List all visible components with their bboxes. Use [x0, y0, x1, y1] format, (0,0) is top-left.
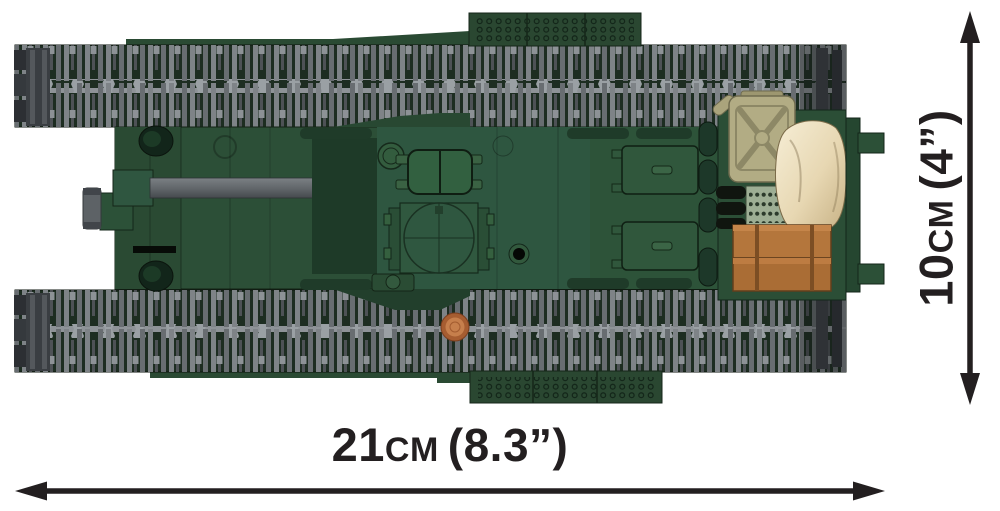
sack: [776, 121, 847, 233]
stud-block-bottom: [470, 371, 662, 403]
width-dimension-label: 21CM(8.3”): [15, 421, 885, 468]
crates: [733, 225, 831, 291]
product-dimension-diagram: 21CM(8.3”) 10CM(4”): [0, 0, 1000, 511]
tool-block: [716, 186, 746, 199]
tow-tab-top: [858, 133, 884, 153]
hull-dark-plate-left: [312, 138, 378, 274]
width-arrow-icon: [15, 480, 885, 502]
engine-hatch-top: [612, 146, 698, 194]
rear-cargo-deck: [711, 91, 846, 300]
copper-stud: [441, 313, 469, 341]
vision-slot: [133, 246, 176, 253]
height-unit: CM: [923, 200, 961, 254]
track-end-cap-left: [14, 48, 50, 126]
height-imperial: (4”): [911, 109, 963, 190]
rear-plate: [846, 118, 884, 292]
stud-block-top: [469, 13, 641, 46]
width-value: 21: [332, 418, 385, 471]
height-value: 10: [910, 253, 963, 306]
width-imperial: (8.3”): [448, 419, 569, 471]
tow-tab-bottom: [858, 264, 884, 284]
height-arrow-icon: [958, 11, 982, 405]
stowed-cylinders: [699, 122, 717, 286]
turret-hatch-doors: [396, 150, 482, 194]
width-unit: CM: [385, 431, 439, 469]
tool-block: [716, 202, 746, 215]
track-end-cap-left: [14, 293, 50, 371]
turret-ring: [384, 203, 494, 273]
height-dimension-label: 10CM(4”): [913, 109, 960, 306]
engine-hatch-bottom: [612, 222, 698, 270]
